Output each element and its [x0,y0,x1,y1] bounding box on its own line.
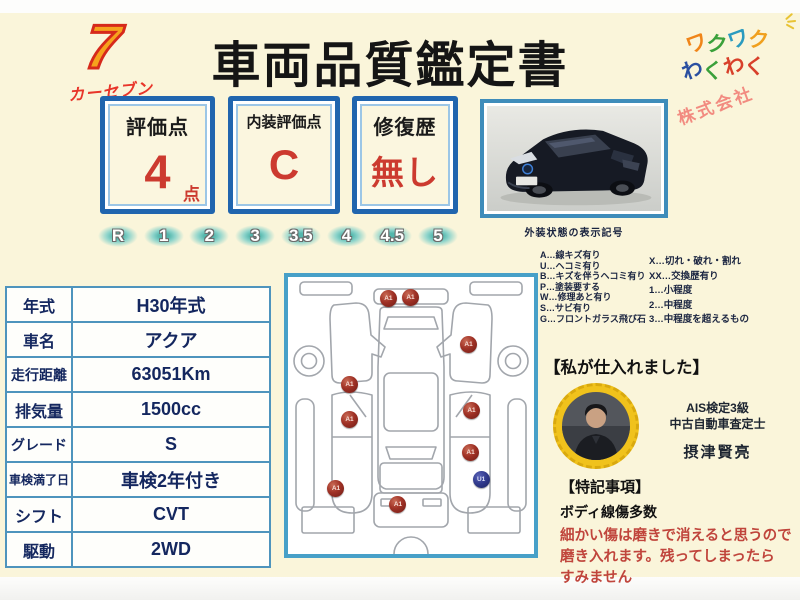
legend-right-item-3: 2…中程度 [649,299,749,314]
legend-left-item-4: W…修理あと有り [540,292,646,303]
rating-scale: R1233.544.55 [98,225,458,247]
scale-value-3: 3 [235,225,275,247]
wakuwaku-char-1-3: く [742,50,765,81]
buyer-heading: 【私が仕入れました】 [544,354,709,378]
scale-value-2: 2 [189,225,229,247]
scale-value-1: 1 [144,225,184,247]
damage-marker-A1-2: A1 [460,336,477,353]
score-box-interior: 内装評価点 C [228,96,340,214]
page-title: 車両品質鑑定書 [190,26,590,97]
car-outline-diagram [288,277,534,554]
spec-row-2: 走行距離63051Km [6,357,270,392]
spec-value-3: 1500cc [72,392,270,427]
score-box-rating-label: 評価点 [105,111,210,140]
special-notes: 【特記事項】 ボディ線傷多数 細かい傷は磨きで消えると思うので磨き入れます。残っ… [560,476,795,589]
vehicle-photo [480,99,668,218]
spec-label-4: グレード [6,427,72,462]
spec-value-1: アクア [72,322,270,357]
buyer-name: 摂津賢亮 [655,441,780,462]
spec-label-3: 排気量 [6,392,72,427]
scale-value-4: 4 [327,225,367,247]
legend-left-item-0: A…線キズ有り [540,250,646,261]
legend-left-item-6: G…フロントガラス飛び石 [540,314,646,325]
sparkle-icon [775,13,795,31]
damage-legend-left: A…線キズ有りU…ヘコミ有りB…キズを伴うヘコミ有りP…塗装要するW…修理あと有… [540,250,646,324]
spec-row-5: 車検満了日車検2年付き [6,462,270,497]
notes-red-line-0: 細かい傷は磨きで消えると思うので [560,526,795,547]
scale-value-3.5: 3.5 [281,225,321,247]
damage-marker-A1-3: A1 [341,376,358,393]
legend-left-item-5: S…サビ有り [540,303,646,314]
spec-label-2: 走行距離 [6,357,72,392]
certificate-page: 7 カーセブン 車両品質鑑定書 ワクワク わくわく 株式会社 評価点 4 点 内… [0,0,800,600]
legend-right-item-2: 1…小程度 [649,284,749,299]
legend-right-item-4: 3…中程度を超えるもの [649,313,749,328]
notes-red-line-2: すみません [560,568,795,589]
legend-left-item-1: U…ヘコミ有り [540,261,646,272]
legend-left-item-3: P…塗装要する [540,282,646,293]
buyer-meta: AIS検定3級 中古自動車査定士 摂津賢亮 [655,400,780,462]
scale-value-5: 5 [418,225,458,247]
damage-marker-A1-9: A1 [389,496,406,513]
scale-value-4.5: 4.5 [372,225,412,247]
spec-row-6: シフトCVT [6,497,270,532]
spec-row-1: 車名アクア [6,322,270,357]
buyer-qualification-1: AIS検定3級 [655,400,780,416]
vehicle-photo-image [487,106,661,211]
score-box-interior-label: 内装評価点 [233,111,335,132]
spec-value-4: S [72,427,270,462]
damage-diagram: A1A1A1A1A1A1A1U1A1A1 [284,273,538,558]
buyer-photo-badge [553,383,639,469]
spec-value-2: 63051Km [72,357,270,392]
spec-row-0: 年式H30年式 [6,287,270,322]
spec-row-3: 排気量1500cc [6,392,270,427]
buyer-qualification-2: 中古自動車査定士 [655,416,780,432]
legend-right-item-0: X…切れ・破れ・割れ [649,255,749,270]
damage-marker-U1-7: U1 [473,471,490,488]
seven-icon: 7 [82,12,124,83]
buyer-portrait [562,392,630,460]
spec-row-4: グレードS [6,427,270,462]
score-box-repair-history: 修復歴 無し [352,96,458,214]
legend-left-item-2: B…キズを伴うヘコミ有り [540,271,646,282]
vehicle-spec-table: 年式H30年式車名アクア走行距離63051Km排気量1500ccグレードS車検満… [5,286,271,568]
score-box-interior-value: C [233,144,335,186]
damage-legend-right: X…切れ・破れ・割れXX…交換歴有り1…小程度2…中程度3…中程度を超えるもの [649,255,749,328]
damage-marker-A1-5: A1 [341,411,358,428]
spec-label-5: 車検満了日 [6,462,72,497]
notes-red-line-1: 磨き入れます。残ってしまったら [560,547,795,568]
vehicle-spec-table-body: 年式H30年式車名アクア走行距離63051Km排気量1500ccグレードS車検満… [6,287,270,567]
score-box-repair-label: 修復歴 [357,111,453,140]
spec-value-7: 2WD [72,532,270,567]
spec-value-6: CVT [72,497,270,532]
notes-red-text: 細かい傷は磨きで消えると思うので磨き入れます。残ってしまったらすみません [560,526,795,589]
score-box-rating-suffix: 点 [183,180,200,205]
spec-row-7: 駆動2WD [6,532,270,567]
photo-caption: 外装状態の表示記号 [480,224,668,239]
notes-heading: 【特記事項】 [560,476,795,497]
scale-value-R: R [98,225,138,247]
company-name: 株式会社 [673,79,757,130]
notes-subject: ボディ線傷多数 [560,502,795,522]
legend-right-item-1: XX…交換歴有り [649,270,749,285]
spec-label-1: 車名 [6,322,72,357]
spec-value-0: H30年式 [72,287,270,322]
damage-marker-A1-6: A1 [462,444,479,461]
score-box-rating: 評価点 4 点 [100,96,215,214]
spec-label-0: 年式 [6,287,72,322]
spec-label-7: 駆動 [6,532,72,567]
wakuwaku-logo: ワクワク わくわく 株式会社 [663,18,797,126]
spec-value-5: 車検2年付き [72,462,270,497]
score-box-repair-value: 無し [357,156,453,189]
spec-label-6: シフト [6,497,72,532]
